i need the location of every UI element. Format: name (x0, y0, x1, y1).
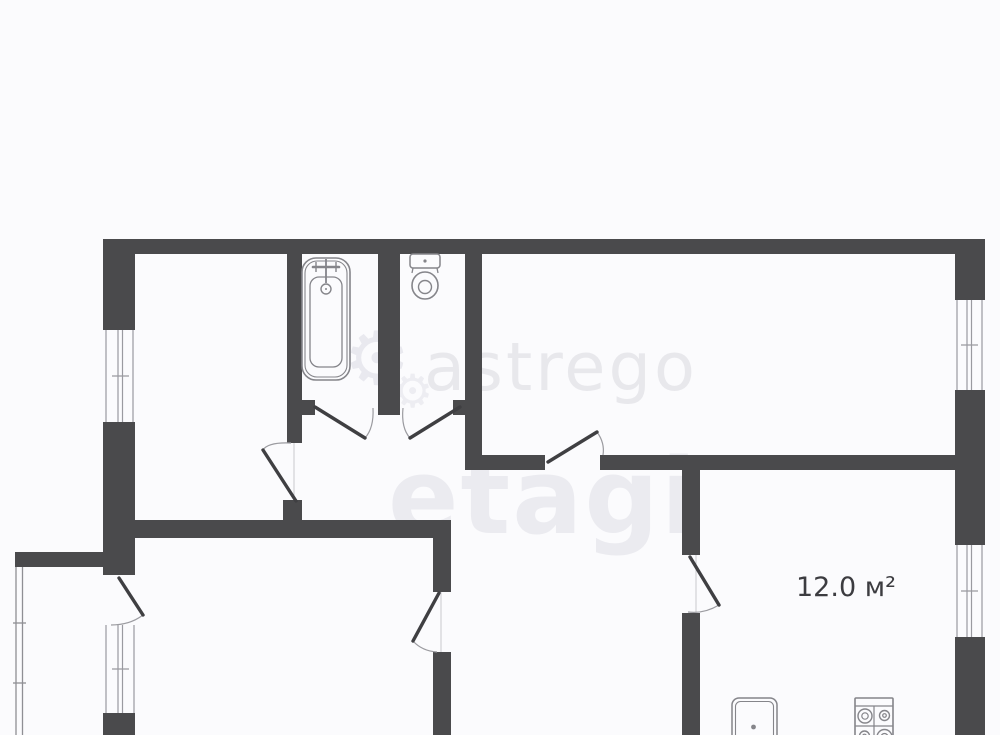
toilet-icon (410, 254, 440, 299)
bathtub-icon (302, 258, 350, 380)
kitchen-sink-icon (732, 698, 777, 735)
bathroom-door-leaf (315, 407, 365, 438)
doors (111, 407, 719, 652)
window-icon (106, 300, 982, 713)
toilet-door-leaf (410, 407, 460, 438)
bedroom-door-leaf (413, 593, 439, 641)
floor-plan: ⚙ ⚙ astrego etagi (0, 0, 1000, 735)
kitchen-area-label: 12.0 м² (796, 572, 896, 603)
plan-graphics (0, 0, 1000, 735)
door-swing-arcs (111, 408, 719, 652)
kitchen-door-leaf (690, 557, 719, 605)
balcony-glazing (13, 567, 26, 735)
room1-door-leaf (263, 450, 296, 501)
balcony-door-leaf (119, 578, 143, 615)
stove-icon (855, 698, 893, 735)
door-thresholds (294, 443, 696, 652)
living-room-door-leaf (548, 432, 597, 462)
door-leaves (119, 407, 719, 641)
